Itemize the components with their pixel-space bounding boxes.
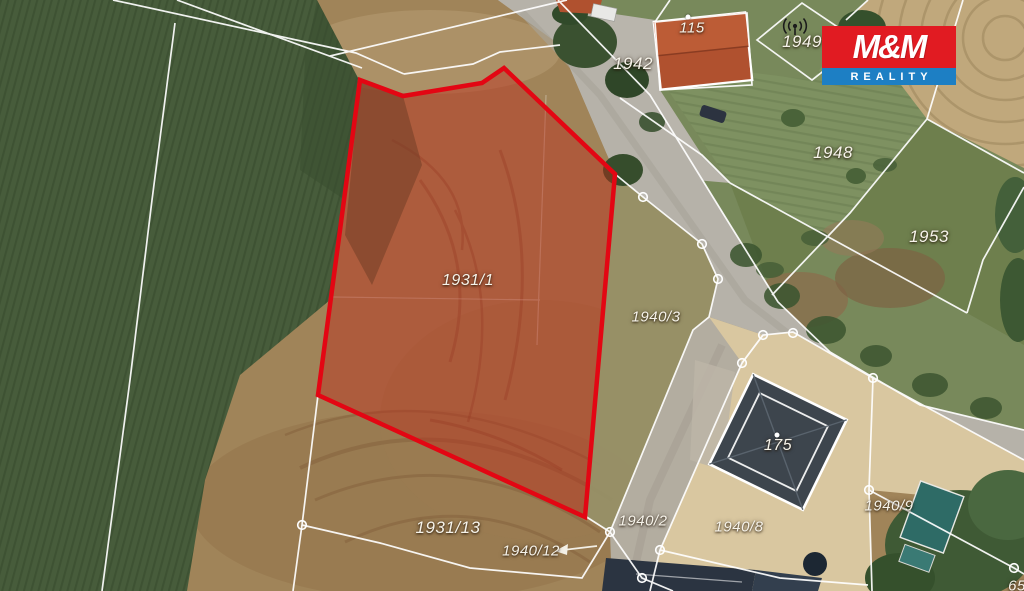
aerial-photo-layer — [0, 0, 1024, 591]
round-tank — [803, 552, 827, 576]
agency-logo: M&M REALITY — [822, 26, 956, 85]
bare-patch — [835, 248, 945, 308]
logo-mm: M&M — [822, 26, 956, 68]
logo-reality: REALITY — [822, 68, 956, 85]
house-115 — [654, 12, 753, 89]
cadastral-aerial-map: 11519421949194819531931/11940/31751940/2… — [0, 0, 1024, 591]
